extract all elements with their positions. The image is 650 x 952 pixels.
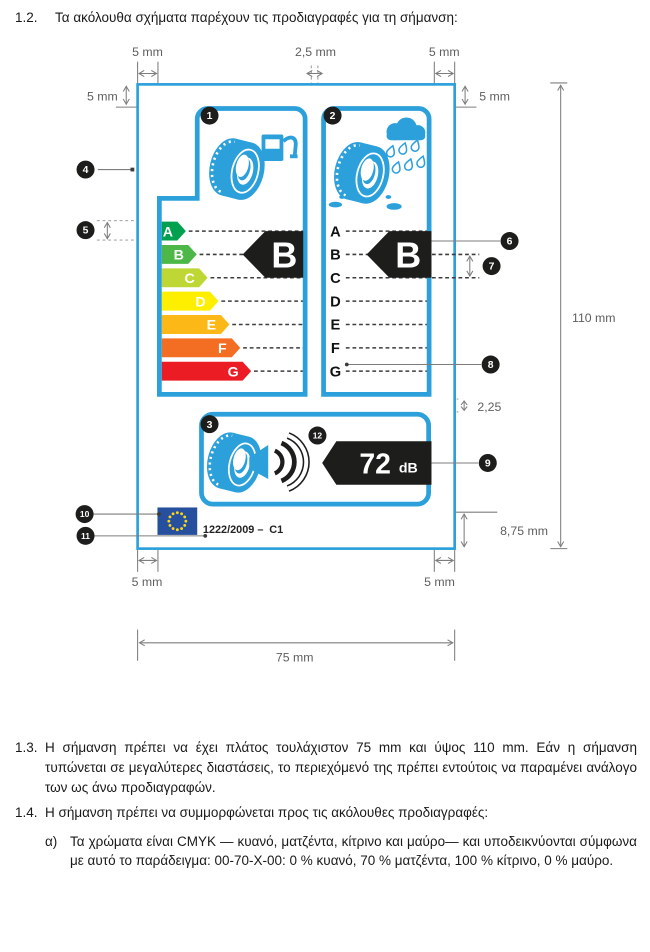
dim-inner-top-right: 5 mm (479, 89, 510, 103)
regulation-reference: 1222/2009 – C1 (203, 524, 283, 536)
grade-bar-F (162, 338, 241, 357)
fuel-class-value: B (271, 235, 297, 276)
marker-number: 9 (485, 459, 491, 470)
grade-column-letter: B (330, 248, 341, 264)
marker-number: 1 (207, 111, 213, 122)
grade-bar-letter: B (174, 248, 184, 264)
grade-column-letter: E (331, 318, 341, 334)
section-number: 1.2. (15, 8, 38, 28)
grade-bar-letter: G (228, 364, 239, 380)
section-1-4: 1.4. Η σήμανση πρέπει να συμμορφώνεται π… (0, 803, 650, 823)
section-1-3: 1.3. Η σήμανση πρέπει να έχει πλάτος του… (0, 738, 650, 798)
section-number: 1.3. (15, 738, 38, 758)
marker-number: 4 (83, 165, 89, 176)
marker-number: 11 (81, 531, 90, 541)
grade-bar-E (162, 315, 230, 334)
dim-inner-top-left: 5 mm (87, 89, 118, 103)
item-text: Τα χρώματα είναι CMYK — κυανό, ματζέντα,… (70, 833, 637, 870)
noise-unit: dB (399, 460, 418, 476)
section-text: Η σήμανση πρέπει να συμμορφώνεται προς τ… (45, 803, 637, 823)
grade-bar-letter: D (195, 294, 205, 310)
dim-total-height: 110 mm (572, 311, 616, 325)
grade-bar-D (162, 292, 219, 311)
dim-top-right: 5 mm (429, 45, 460, 59)
marker-number: 8 (488, 360, 494, 371)
item-number: α) (45, 833, 57, 852)
marker-number: 2 (330, 111, 336, 122)
section-number: 1.4. (15, 803, 38, 823)
grade-column-letter: F (331, 341, 340, 357)
dim-top-center: 2,5 mm (295, 45, 336, 59)
grade-column-letter: C (330, 271, 341, 287)
grade-column-letter: G (330, 364, 341, 380)
grade-bar-letter: A (163, 224, 173, 240)
wet-grip-class-value: B (395, 235, 421, 276)
document-page: 1.2. Τα ακόλουθα σχήματα παρέχουν τις πρ… (0, 0, 650, 952)
marker-number: 3 (207, 420, 213, 431)
dim-top-left: 5 mm (132, 45, 163, 59)
section-text: Τα ακόλουθα σχήματα παρέχουν τις προδιαγ… (55, 8, 620, 28)
dim-total-width: 75 mm (276, 651, 314, 665)
dim-section-gap: 2,25 (477, 400, 501, 414)
section-text: Η σήμανση πρέπει να έχει πλάτος τουλάχισ… (45, 738, 637, 798)
noise-value: 72 (359, 448, 391, 480)
marker-number: 7 (489, 262, 495, 273)
grade-bar-letter: F (218, 341, 227, 357)
marker-number: 12 (313, 431, 323, 441)
tyre-label-diagram: AABBCCDDEEFFGG (0, 38, 650, 710)
marker-number: 10 (80, 509, 90, 519)
item-a: α) Τα χρώματα είναι CMYK — κυανό, ματζέν… (0, 833, 650, 870)
dim-bottom-left: 5 mm (132, 575, 163, 589)
grade-column-letter: A (330, 224, 341, 240)
dim-bottom-band: 8,75 mm (500, 524, 548, 538)
eu-flag (157, 507, 197, 534)
dim-bottom-right: 5 mm (424, 575, 455, 589)
grade-bar-letter: C (185, 271, 195, 287)
grade-column-letter: D (330, 294, 341, 310)
grade-bar-letter: E (207, 318, 216, 334)
marker-number: 5 (83, 226, 89, 237)
marker-number: 6 (507, 237, 513, 248)
section-1-2: 1.2. Τα ακόλουθα σχήματα παρέχουν τις πρ… (0, 8, 650, 28)
